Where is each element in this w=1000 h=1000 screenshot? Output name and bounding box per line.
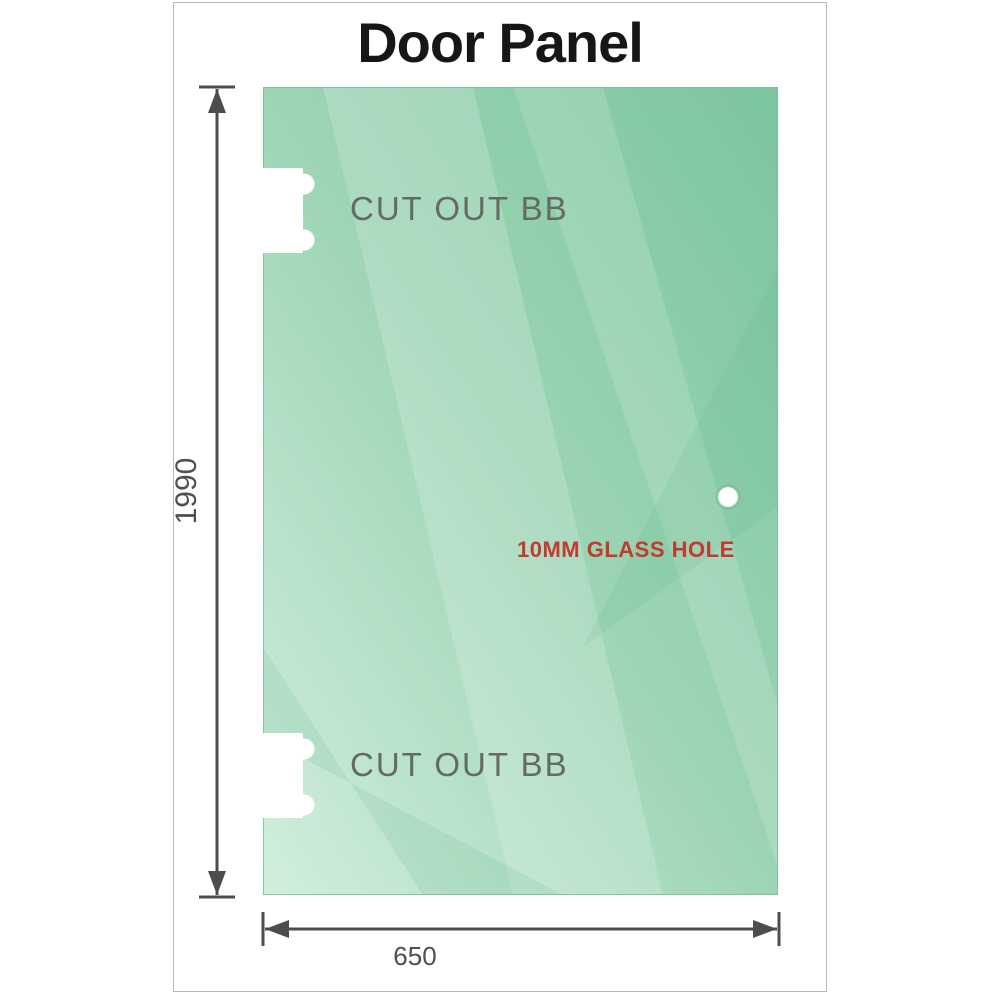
- cutout-top-label: CUT OUT BB: [350, 190, 569, 228]
- height-dimension-value: 1990: [170, 456, 200, 526]
- width-dimension-value: 650: [375, 941, 455, 972]
- arrow-left-icon: [265, 920, 289, 938]
- glass-hole: [717, 486, 739, 508]
- door-panel-diagram: Door Panel: [0, 0, 1000, 1000]
- arrow-up-icon: [208, 89, 226, 113]
- glass-hole-label: 10MM GLASS HOLE: [517, 537, 735, 563]
- width-dimension: [255, 903, 787, 955]
- cutout-bottom-label: CUT OUT BB: [350, 746, 569, 784]
- arrow-right-icon: [753, 920, 777, 938]
- arrow-down-icon: [208, 871, 226, 895]
- page-title: Door Panel: [173, 14, 827, 73]
